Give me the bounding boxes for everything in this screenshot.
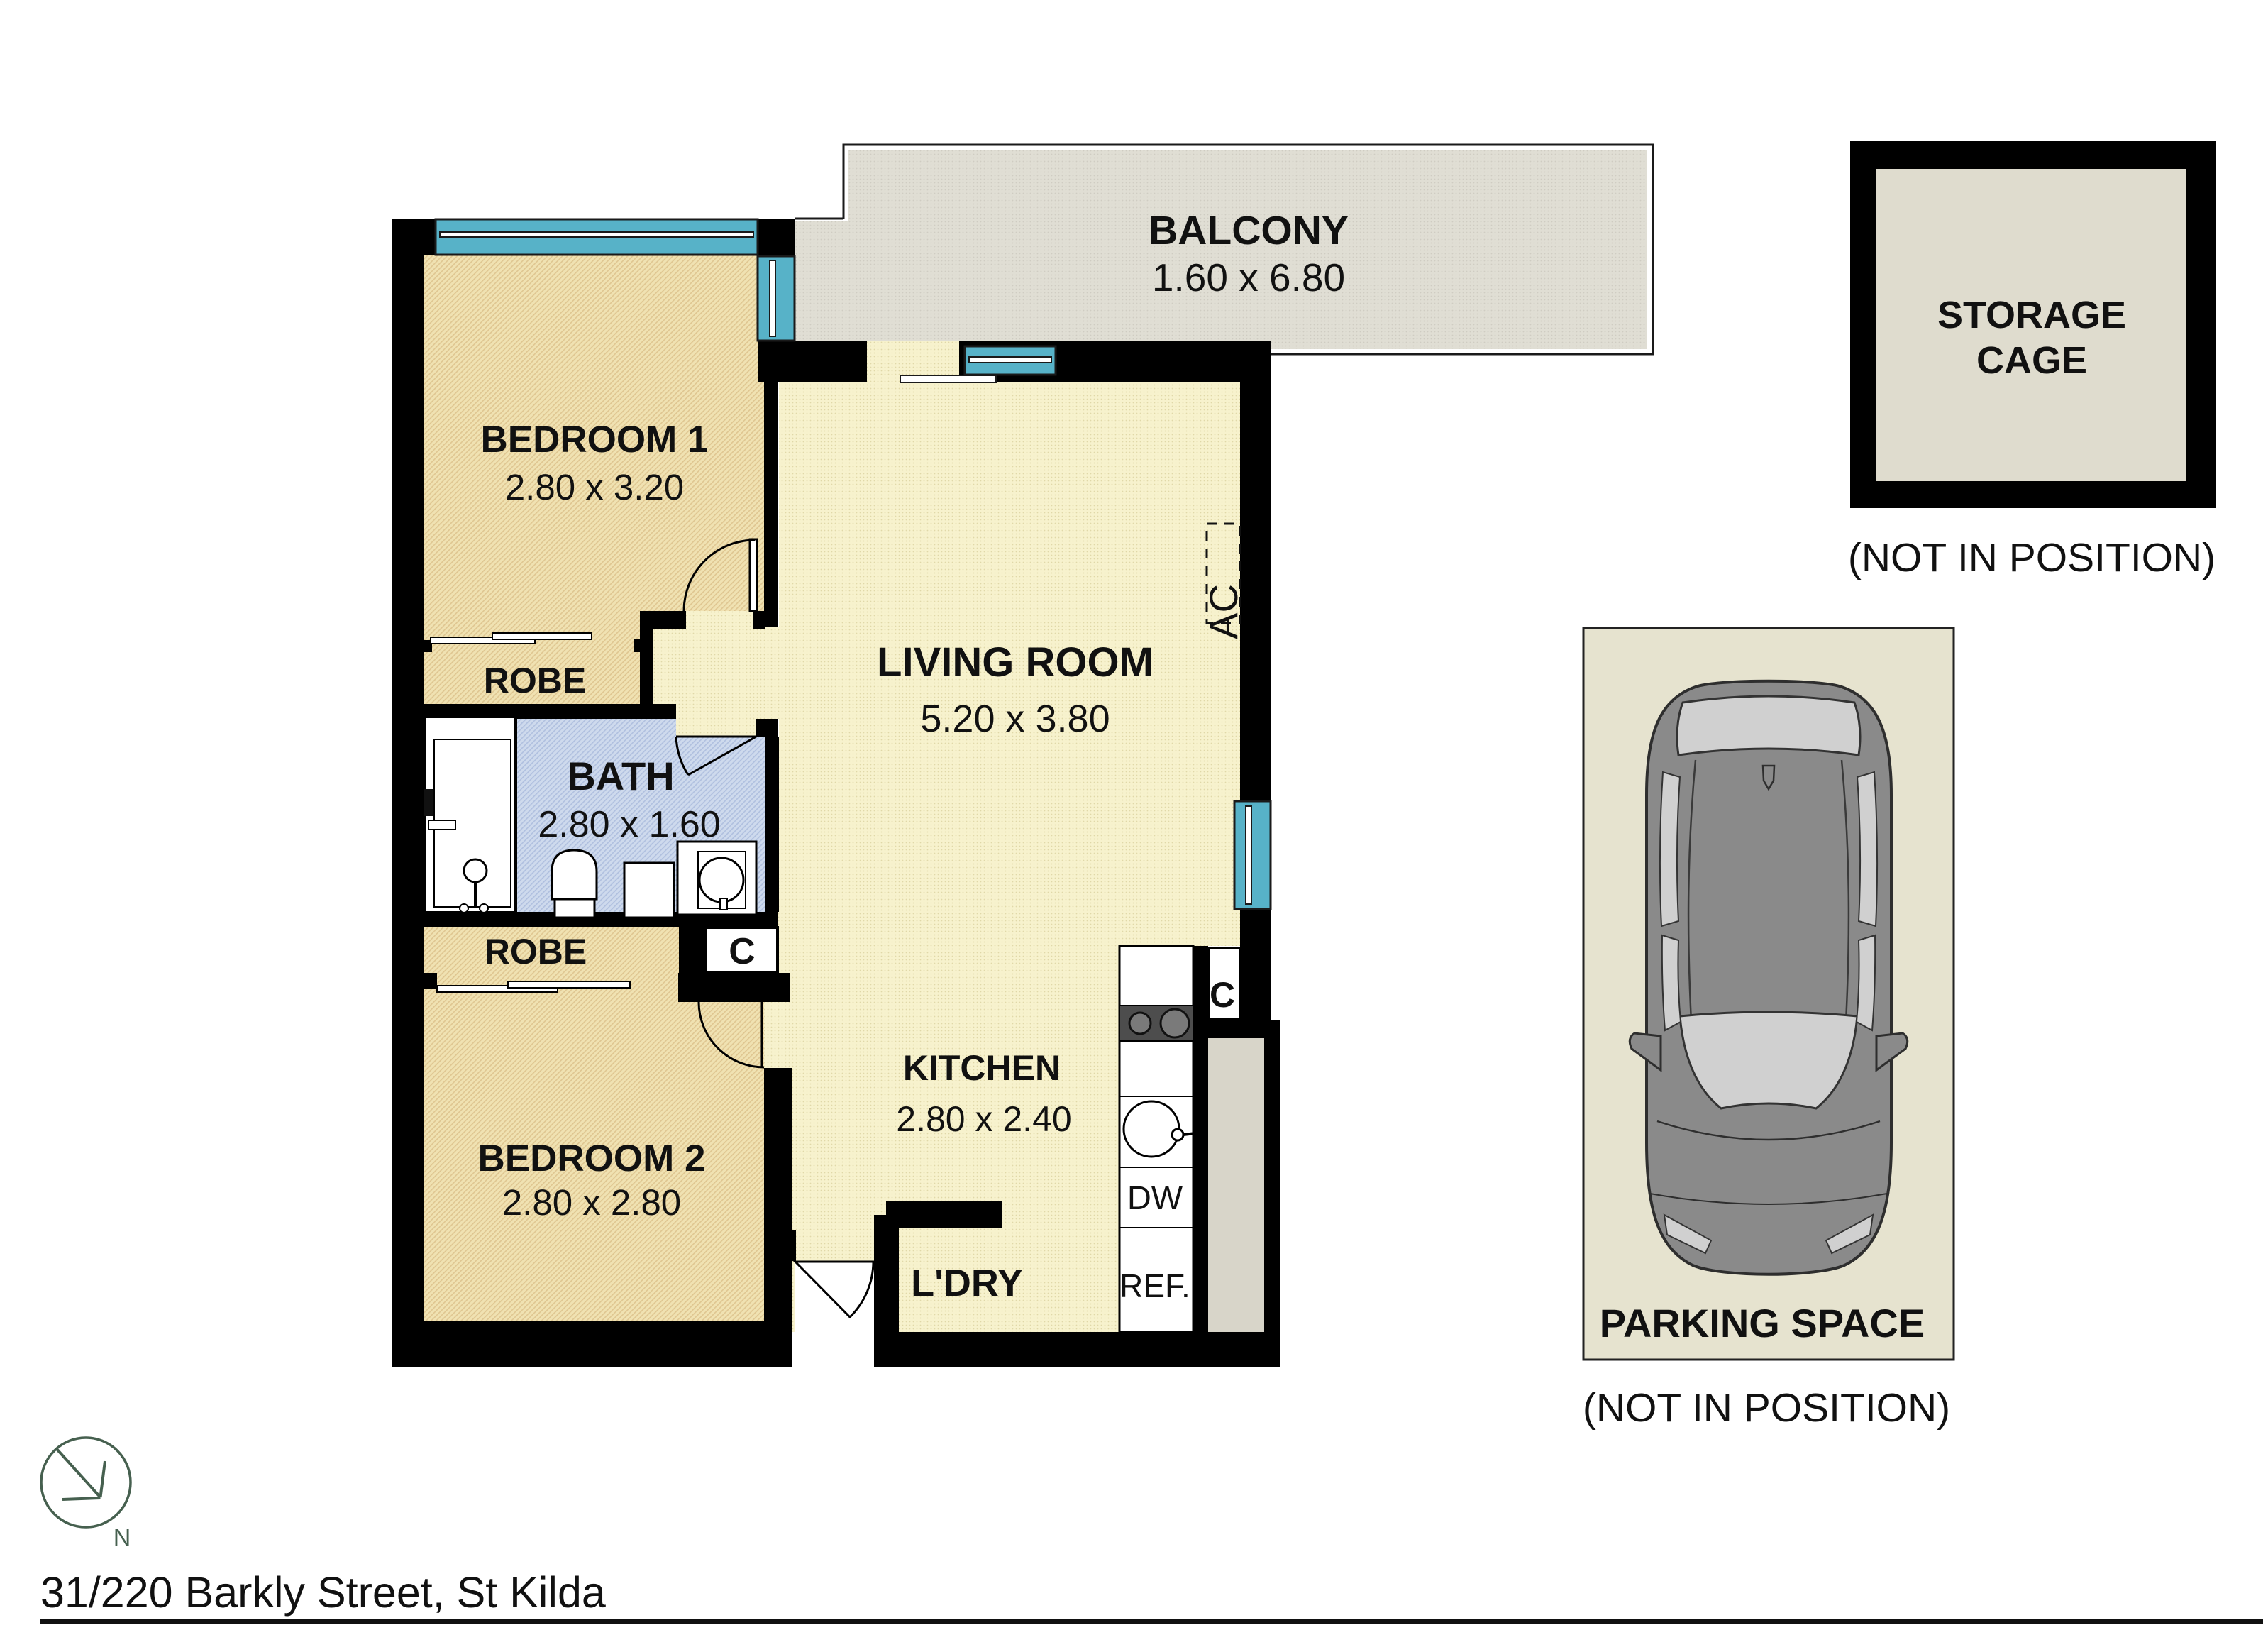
svg-text:(NOT IN POSITION): (NOT IN POSITION): [1583, 1385, 1950, 1431]
svg-text:BEDROOM 2: BEDROOM 2: [478, 1138, 706, 1179]
svg-text:2.80 x 3.20: 2.80 x 3.20: [505, 467, 684, 507]
svg-text:BALCONY: BALCONY: [1149, 208, 1349, 253]
svg-text:LIVING ROOM: LIVING ROOM: [877, 639, 1154, 685]
svg-text:2.80 x 1.60: 2.80 x 1.60: [538, 804, 720, 845]
svg-text:1.60 x 6.80: 1.60 x 6.80: [1152, 255, 1345, 299]
svg-text:ROBE: ROBE: [484, 661, 586, 700]
svg-text:AC: AC: [1201, 584, 1246, 639]
svg-text:5.20 x 3.80: 5.20 x 3.80: [920, 698, 1110, 740]
svg-text:2.80 x 2.40: 2.80 x 2.40: [896, 1099, 1071, 1139]
svg-text:BEDROOM 1: BEDROOM 1: [481, 419, 709, 461]
svg-text:C: C: [729, 931, 756, 972]
svg-text:N: N: [114, 1524, 131, 1551]
svg-text:STORAGE: STORAGE: [1937, 294, 2126, 336]
svg-text:2.80 x 2.80: 2.80 x 2.80: [502, 1182, 681, 1223]
svg-text:(NOT IN POSITION): (NOT IN POSITION): [1848, 535, 2216, 580]
svg-text:C: C: [1210, 975, 1235, 1015]
svg-text:ROBE: ROBE: [485, 932, 587, 971]
svg-text:31/220 Barkly Street, St Kilda: 31/220 Barkly Street, St Kilda: [40, 1568, 606, 1617]
svg-text:PARKING SPACE: PARKING SPACE: [1600, 1301, 1925, 1345]
svg-text:CAGE: CAGE: [1976, 339, 2087, 382]
svg-text:BATH: BATH: [567, 754, 674, 798]
svg-text:DW: DW: [1127, 1179, 1183, 1216]
svg-text:KITCHEN: KITCHEN: [903, 1048, 1061, 1088]
svg-text:REF.: REF.: [1119, 1267, 1190, 1304]
svg-text:L'DRY: L'DRY: [911, 1262, 1023, 1304]
